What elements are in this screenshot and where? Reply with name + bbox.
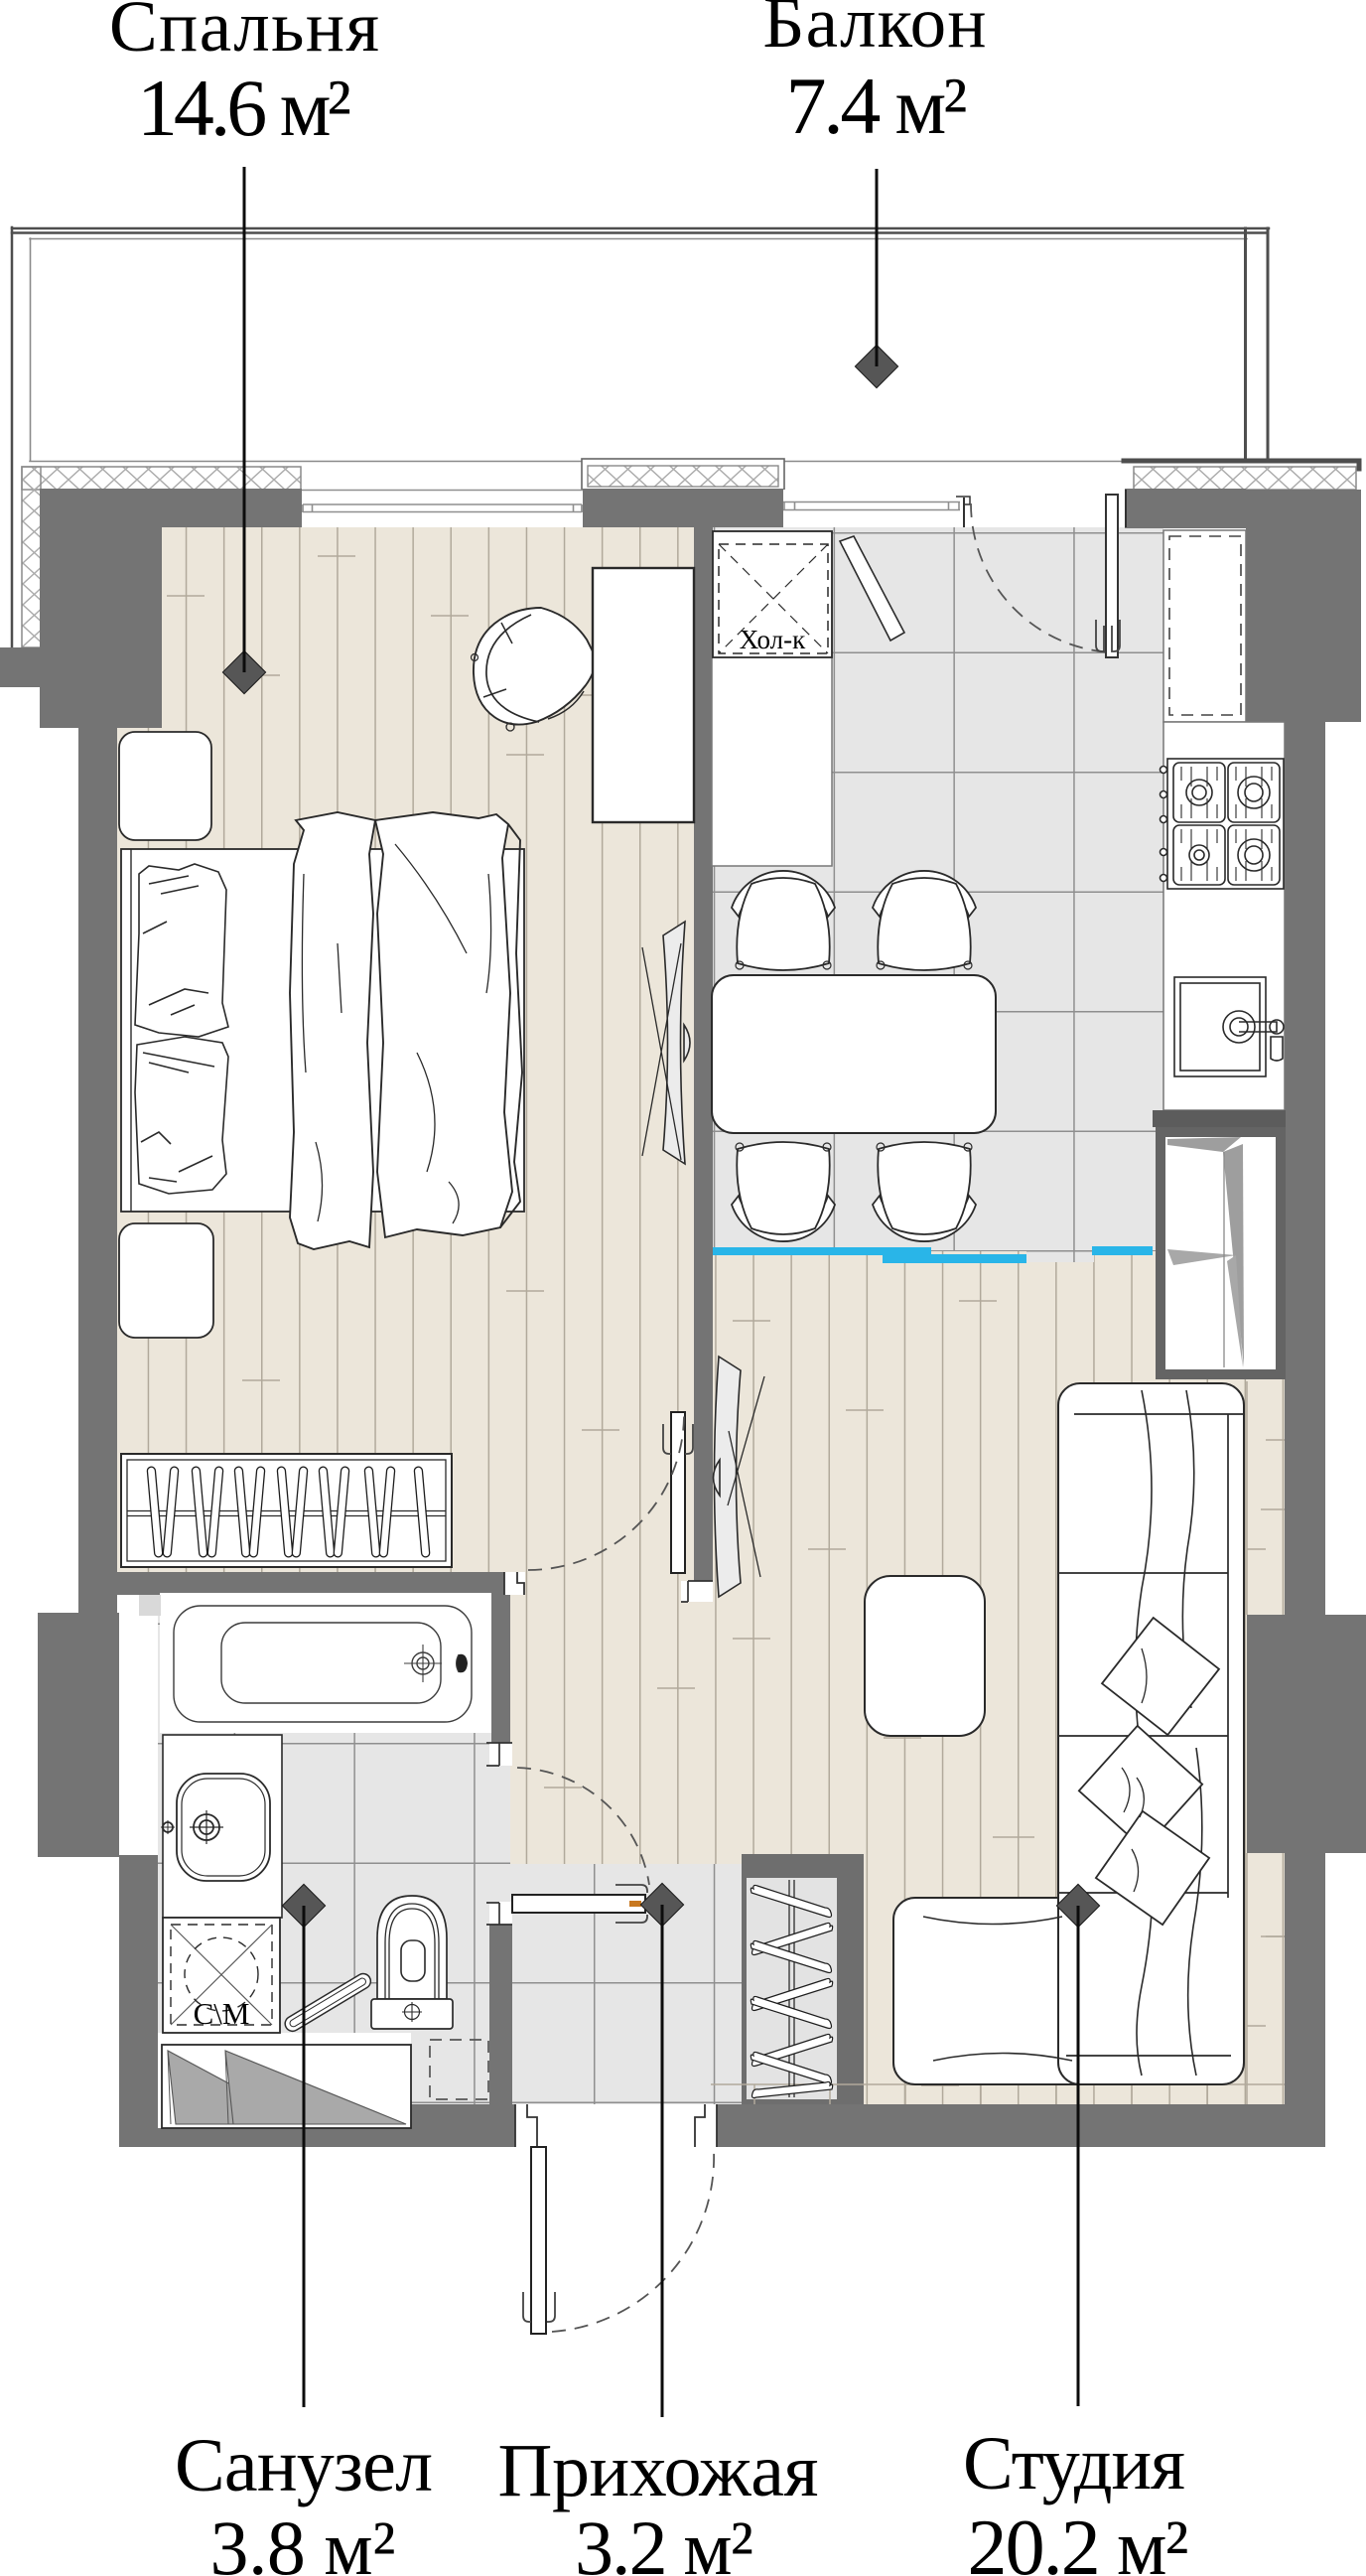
svg-text:Балкон: Балкон — [763, 0, 987, 63]
svg-text:Спальня: Спальня — [109, 0, 379, 67]
svg-text:Санузел: Санузел — [175, 2424, 433, 2507]
svg-text:20.2 м²: 20.2 м² — [968, 2504, 1189, 2576]
svg-text:14.6 м²: 14.6 м² — [137, 63, 351, 153]
svg-text:3.2 м²: 3.2 м² — [575, 2504, 753, 2576]
svg-text:С\М: С\М — [194, 1996, 250, 2031]
svg-text:Студия: Студия — [963, 2422, 1185, 2505]
svg-text:3.8 м²: 3.8 м² — [210, 2504, 396, 2576]
svg-text:7.4 м²: 7.4 м² — [786, 61, 968, 151]
svg-text:Хол-к: Хол-к — [740, 625, 806, 654]
svg-text:Прихожая: Прихожая — [498, 2429, 819, 2512]
